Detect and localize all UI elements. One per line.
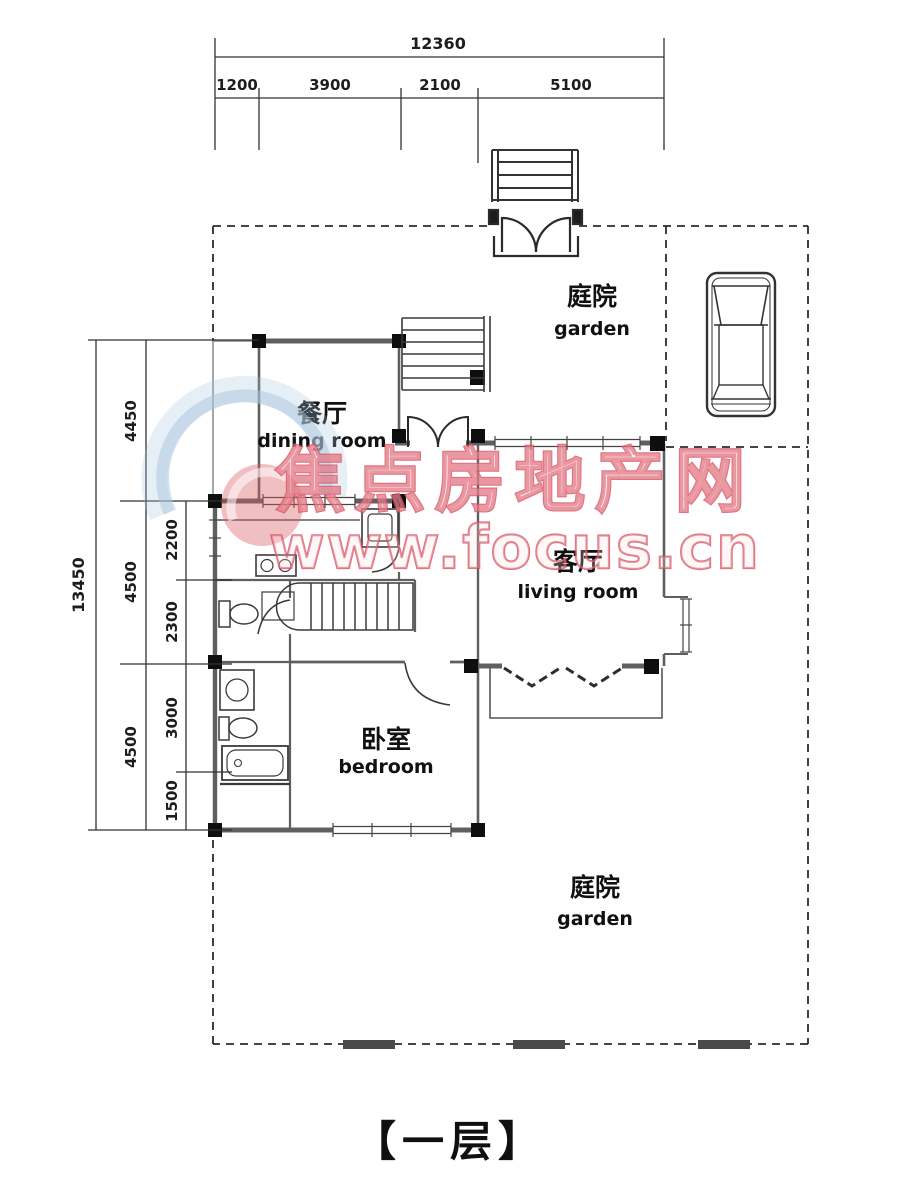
gate-double-door-icon bbox=[489, 210, 582, 256]
svg-text:焦点房地产网: 焦点房地产网 bbox=[275, 440, 755, 522]
svg-text:4500: 4500 bbox=[122, 726, 140, 768]
column bbox=[252, 334, 266, 348]
svg-text:www.focus.cn: www.focus.cn bbox=[269, 513, 761, 583]
watermark-text: 焦点房地产网 www.focus.cn bbox=[269, 440, 761, 583]
svg-text:12360: 12360 bbox=[410, 34, 466, 53]
column bbox=[208, 655, 222, 669]
floor-plan-svg: 庭院 garden 餐厅 dining room 客厅 living room … bbox=[0, 0, 900, 1200]
hedge-icon bbox=[513, 1040, 565, 1049]
column bbox=[392, 334, 406, 348]
svg-text:1200: 1200 bbox=[216, 76, 258, 94]
svg-text:1500: 1500 bbox=[163, 780, 181, 822]
room-label-garden-top: 庭院 garden bbox=[554, 282, 630, 340]
interior-staircase-icon bbox=[262, 583, 413, 630]
garden-gate bbox=[489, 150, 582, 256]
hedge-icon bbox=[343, 1040, 395, 1049]
top-dimension-lines bbox=[215, 38, 664, 163]
svg-text:3000: 3000 bbox=[163, 697, 181, 739]
svg-text:4500: 4500 bbox=[122, 561, 140, 603]
toilet-icon-2 bbox=[219, 717, 257, 740]
bathtub-icon bbox=[220, 746, 290, 784]
top-dimension-labels: 12360 1200 3900 2100 5100 bbox=[216, 34, 592, 94]
svg-text:garden: garden bbox=[557, 908, 633, 930]
bathroom-fixtures bbox=[219, 601, 290, 784]
svg-text:2200: 2200 bbox=[163, 519, 181, 561]
folding-door-icon bbox=[504, 668, 622, 686]
svg-text:2300: 2300 bbox=[163, 601, 181, 643]
column bbox=[644, 659, 659, 674]
svg-text:3900: 3900 bbox=[309, 76, 351, 94]
bathroom-door-icon bbox=[258, 600, 290, 634]
column bbox=[464, 659, 478, 673]
window-bedroom-bottom bbox=[333, 823, 451, 837]
hedge-icon bbox=[698, 1040, 750, 1049]
toilet-icon bbox=[219, 601, 258, 627]
svg-text:bedroom: bedroom bbox=[338, 756, 433, 778]
column bbox=[471, 823, 485, 837]
svg-text:2100: 2100 bbox=[419, 76, 461, 94]
washbasin-icon bbox=[220, 670, 254, 710]
room-label-garden-bottom: 庭院 garden bbox=[557, 873, 633, 930]
window-bay-right bbox=[680, 599, 692, 652]
svg-text:living room: living room bbox=[518, 581, 639, 603]
bedroom-door-icon bbox=[405, 663, 450, 705]
svg-text:卧室: 卧室 bbox=[361, 725, 411, 754]
svg-text:garden: garden bbox=[554, 318, 630, 340]
gate-steps-icon bbox=[492, 150, 578, 202]
svg-text:庭院: 庭院 bbox=[567, 282, 617, 311]
floor-plan-page: 庭院 garden 餐厅 dining room 客厅 living room … bbox=[0, 0, 900, 1200]
svg-text:5100: 5100 bbox=[550, 76, 592, 94]
floor-title: 【一层】 bbox=[0, 1108, 900, 1169]
svg-text:4450: 4450 bbox=[122, 400, 140, 442]
car-icon bbox=[707, 273, 775, 416]
svg-text:13450: 13450 bbox=[69, 557, 88, 613]
room-label-bedroom: 卧室 bedroom bbox=[338, 725, 433, 778]
svg-text:庭院: 庭院 bbox=[570, 873, 620, 902]
terrace bbox=[490, 668, 662, 718]
